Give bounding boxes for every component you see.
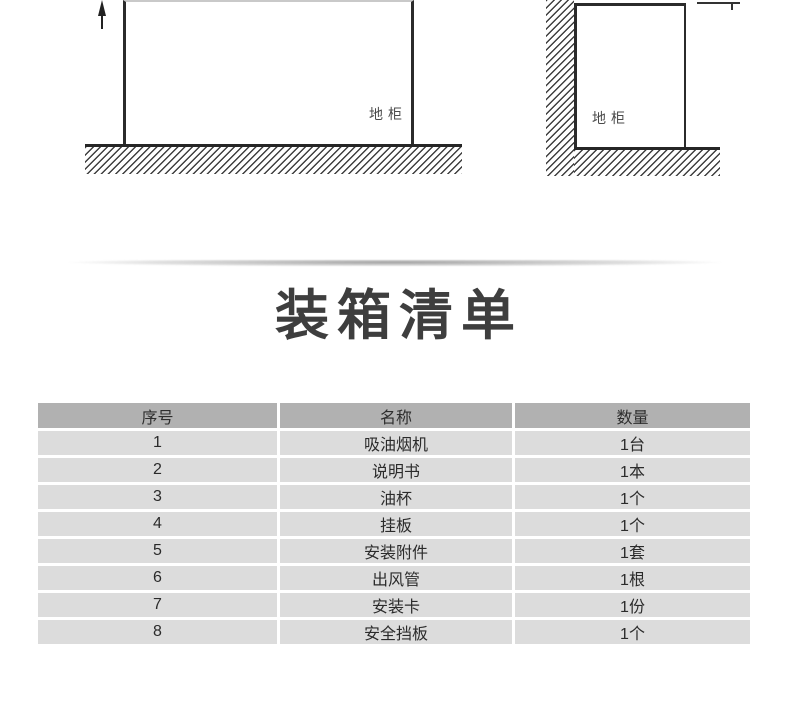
table-cell: 1本 (515, 458, 750, 482)
table-cell: 说明书 (280, 458, 512, 482)
table-header-cell: 数量 (515, 403, 750, 428)
installation-diagram-section: 地柜 地柜 (0, 0, 790, 230)
table-cell: 2 (38, 458, 277, 482)
floor-mount-diagram: 地柜 (85, 0, 462, 178)
cabinet-label: 地柜 (592, 108, 630, 128)
dimension-tick (731, 2, 733, 10)
table-cell: 油杯 (280, 485, 512, 509)
cabinet-outline (574, 3, 686, 147)
floor-hatch (574, 147, 720, 176)
table-cell: 8 (38, 620, 277, 644)
table-cell: 1台 (515, 431, 750, 455)
up-arrow-icon (97, 0, 107, 30)
table-cell: 1套 (515, 539, 750, 563)
table-cell: 安装附件 (280, 539, 512, 563)
table-cell: 3 (38, 485, 277, 509)
page: { "diagrams": { "left_cabinet_label": "地… (0, 0, 790, 714)
up-arrow-stem (101, 12, 103, 29)
packing-list-table: 序号 名称 数量 1 吸油烟机 1台 2 说明书 1本 3 油杯 1个 4 挂板… (38, 403, 750, 644)
floor-hatch (85, 144, 462, 174)
table-cell: 1根 (515, 566, 750, 590)
table-cell: 吸油烟机 (280, 431, 512, 455)
wall-hatch (546, 0, 574, 176)
section-divider-shadow (0, 260, 790, 266)
table-cell: 1份 (515, 593, 750, 617)
table-cell: 安全挡板 (280, 620, 512, 644)
table-cell: 4 (38, 512, 277, 536)
table-cell: 1个 (515, 620, 750, 644)
table-cell: 1个 (515, 512, 750, 536)
page-title: 装箱清单 (0, 284, 790, 348)
wall-corner-diagram: 地柜 (546, 0, 720, 178)
table-cell: 挂板 (280, 512, 512, 536)
table-cell: 1 (38, 431, 277, 455)
table-cell: 1个 (515, 485, 750, 509)
table-cell: 6 (38, 566, 277, 590)
cabinet-label: 地柜 (369, 104, 407, 124)
table-cell: 5 (38, 539, 277, 563)
table-cell: 安装卡 (280, 593, 512, 617)
table-cell: 出风管 (280, 566, 512, 590)
table-cell: 7 (38, 593, 277, 617)
dimension-line (697, 2, 740, 4)
table-header-cell: 名称 (280, 403, 512, 428)
table-header-cell: 序号 (38, 403, 277, 428)
